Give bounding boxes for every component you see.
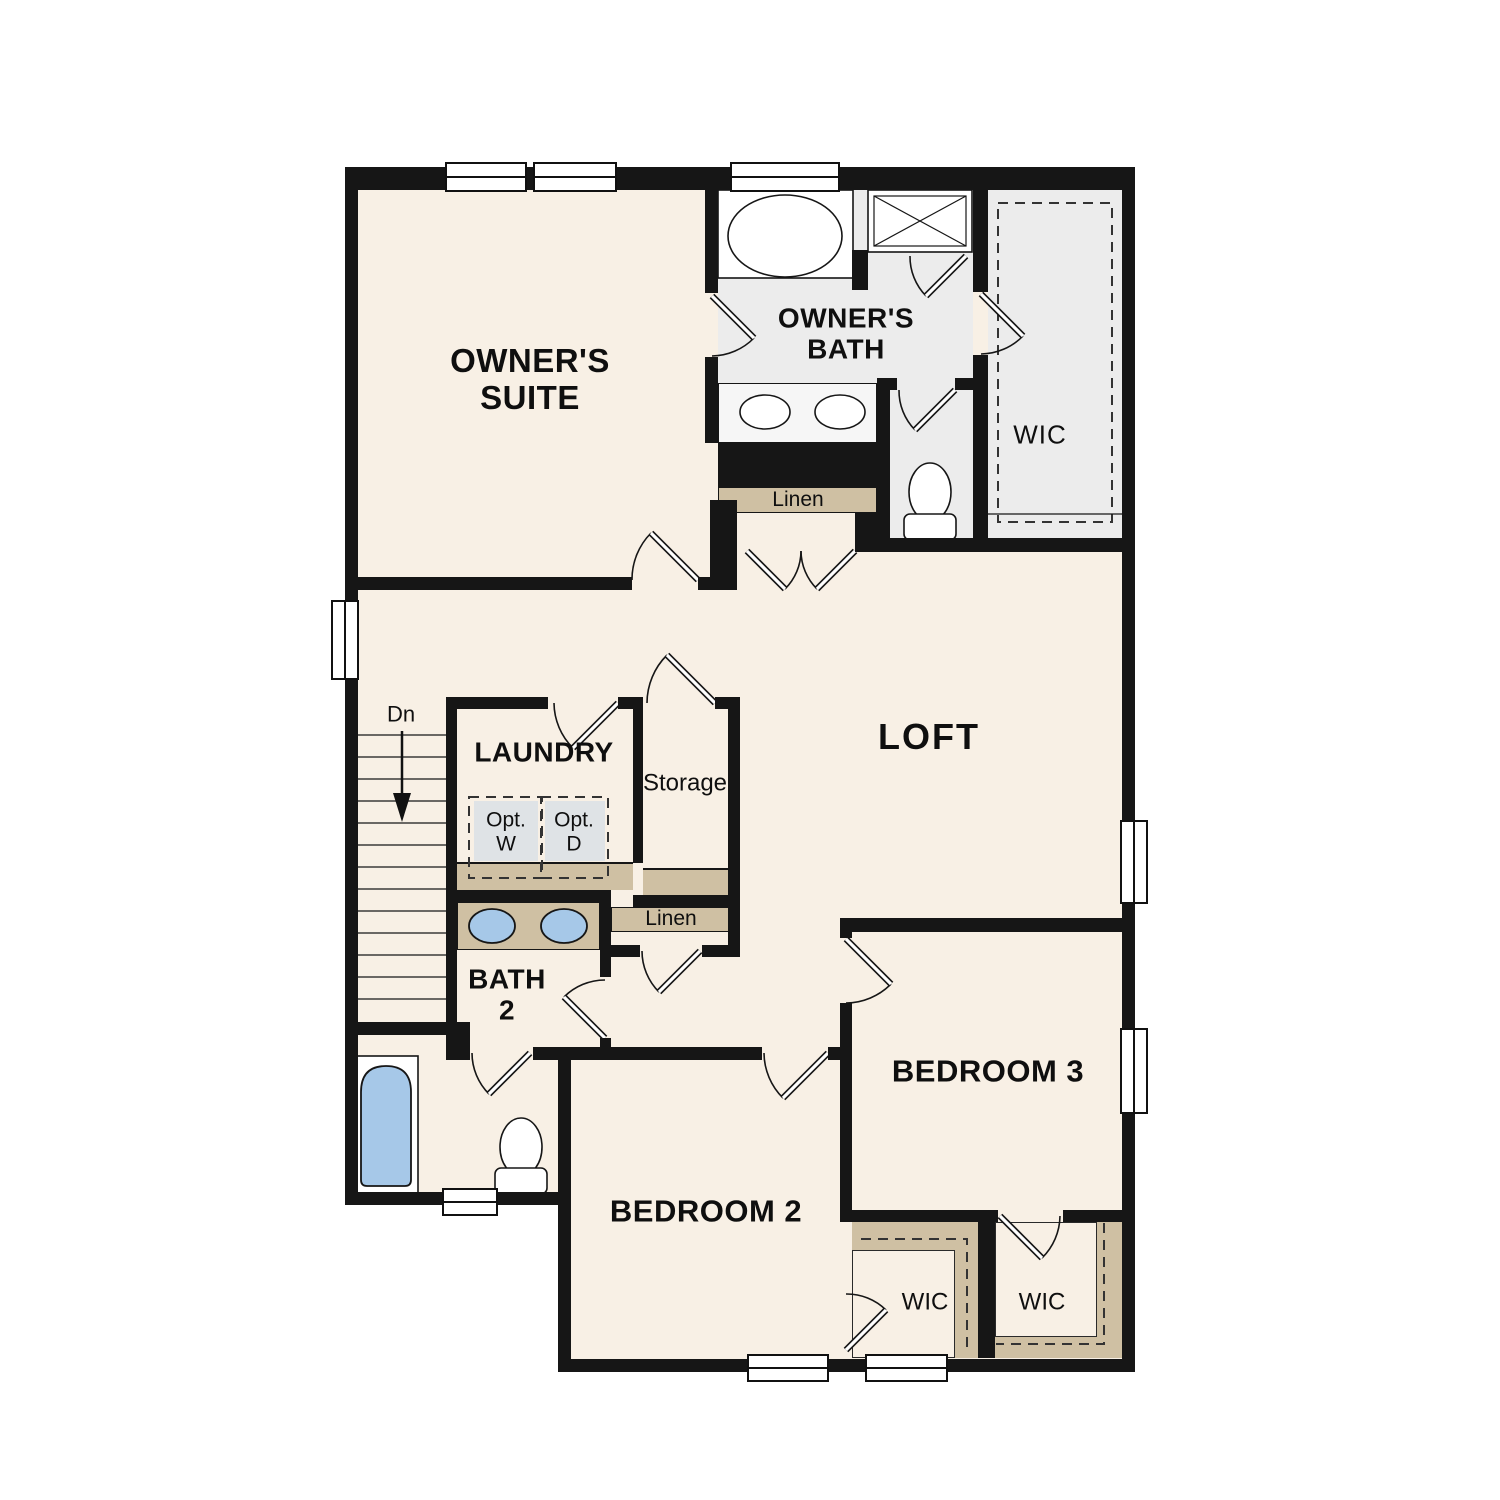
wall [1063, 1210, 1122, 1222]
laundry-counter [457, 862, 633, 890]
wall [877, 380, 890, 552]
toilet-room-floor [890, 388, 973, 538]
wall [533, 1047, 762, 1060]
owners-vanity-counter [718, 383, 877, 443]
storage-shelf [643, 868, 728, 895]
wall [446, 697, 457, 1035]
wall [633, 709, 643, 863]
label-laundry: LAUNDRY [474, 736, 613, 767]
wall [558, 1047, 571, 1372]
window [747, 1354, 829, 1382]
label-owners-bath: OWNER'S BATH [778, 303, 914, 366]
wall [345, 1022, 457, 1035]
wall [840, 1003, 852, 1210]
label-stairs-down: Dn [387, 703, 415, 728]
label-storage: Storage [643, 771, 727, 798]
wall [618, 697, 643, 709]
window [1120, 1028, 1148, 1114]
wall [1122, 167, 1135, 1372]
wall [600, 890, 611, 977]
floor-plan: OWNER'S SUITE OWNER'S BATH WIC Linen LOF… [0, 0, 1500, 1500]
label-bedroom2: BEDROOM 2 [610, 1195, 802, 1230]
label-bedroom3: BEDROOM 3 [892, 1055, 1084, 1090]
wall-chase [718, 443, 877, 487]
window [533, 162, 617, 192]
window [445, 162, 527, 192]
label-opt-dryer: Opt. D [554, 808, 594, 855]
wall [705, 190, 718, 293]
wall [877, 538, 1122, 552]
wall [855, 513, 877, 552]
window [865, 1354, 948, 1382]
label-owners-suite: OWNER'S SUITE [450, 343, 610, 417]
window [1120, 820, 1148, 904]
wall [446, 890, 611, 902]
wall [978, 1222, 995, 1358]
wall [973, 190, 988, 292]
wall [840, 1210, 998, 1222]
label-bedroom2-wic: WIC [902, 1290, 949, 1317]
wall [446, 697, 548, 709]
wall [877, 378, 897, 390]
wall [345, 577, 632, 590]
label-bedroom3-wic: WIC [1019, 1290, 1066, 1317]
wall [705, 357, 718, 443]
wall [852, 250, 868, 290]
wall [345, 167, 358, 1205]
window [730, 162, 840, 192]
bath2-vanity-counter [457, 902, 600, 950]
bedroom3-wic-floor [995, 1222, 1097, 1337]
wall [558, 1359, 1135, 1372]
exterior-area [335, 1205, 558, 1500]
wall [955, 378, 985, 390]
label-owners-wic: WIC [1013, 420, 1067, 449]
window [442, 1188, 498, 1216]
label-loft: LOFT [878, 717, 980, 757]
window [331, 600, 359, 680]
wall [702, 945, 740, 957]
label-owners-linen: Linen [772, 488, 823, 512]
wall [710, 500, 737, 590]
wall [840, 918, 1122, 932]
wall [633, 895, 740, 907]
wall [446, 1022, 470, 1060]
label-hall-linen: Linen [645, 907, 696, 931]
owners-wic-floor [988, 190, 1122, 538]
wall [600, 945, 640, 957]
label-bath2: BATH 2 [468, 964, 546, 1027]
label-opt-washer: Opt. W [486, 808, 526, 855]
wall [728, 697, 740, 957]
